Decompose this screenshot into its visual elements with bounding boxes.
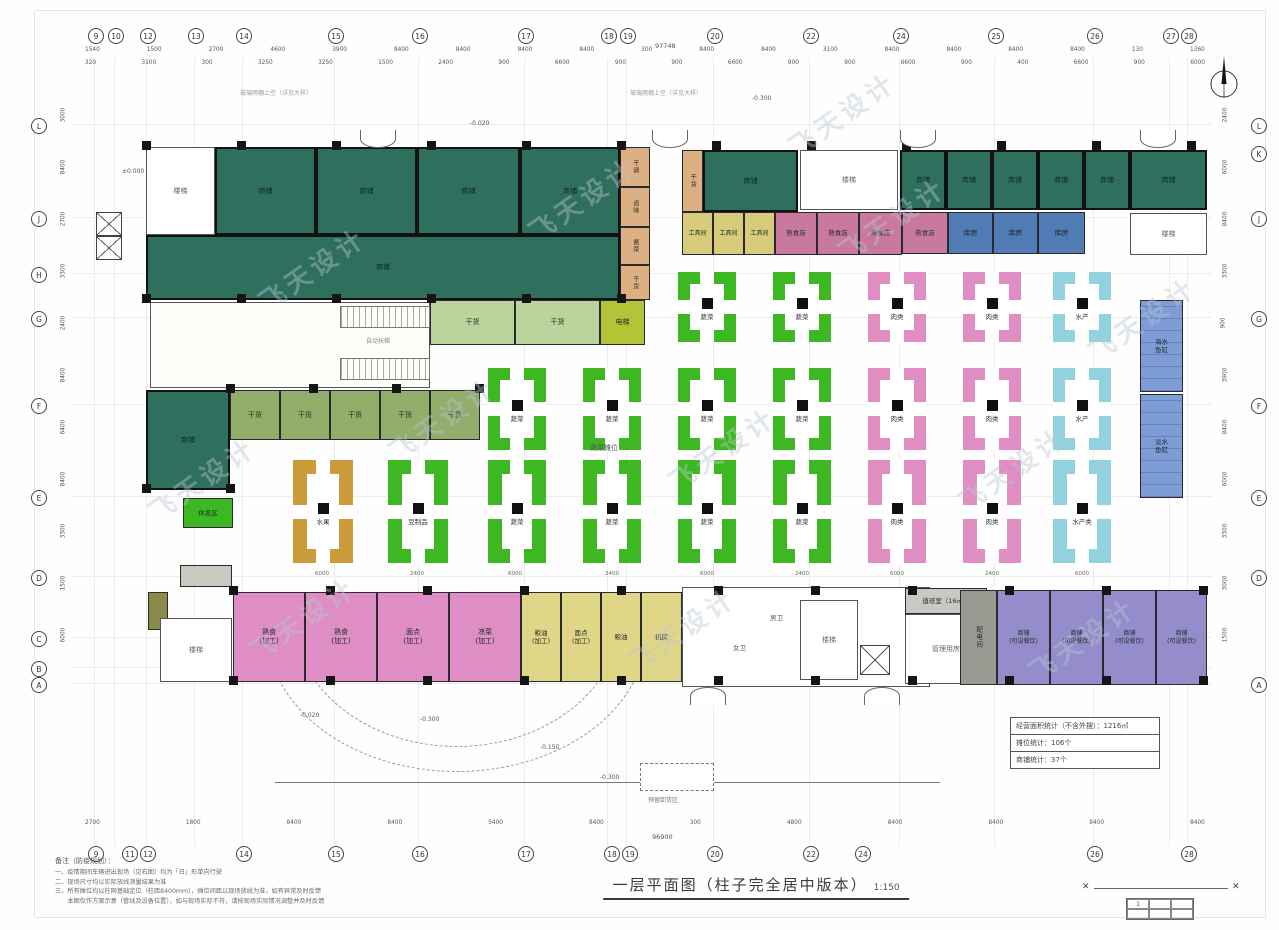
title-text: 一层平面图（柱子完全居中版本） xyxy=(613,876,868,894)
stall-aisle-gap xyxy=(1075,460,1089,474)
column-icon xyxy=(702,400,713,411)
column-icon xyxy=(326,676,335,685)
annotation-text: 女卫 xyxy=(733,642,746,652)
axis-bubble: J xyxy=(31,211,47,227)
axis-bubble: 24 xyxy=(893,28,909,44)
room-商铺: 商铺 (可设餐饮) xyxy=(1050,590,1103,685)
dimension-value: 2400 xyxy=(1222,108,1228,123)
dimension-value: 3250 xyxy=(318,60,333,66)
annotation-text: 预留卸货区 xyxy=(648,795,678,804)
dimension-value: 8400 xyxy=(589,820,604,826)
annotation-text: 2400 xyxy=(985,571,999,577)
annotation-text: 6000 xyxy=(1075,571,1089,577)
dimension-value: 400 xyxy=(1017,60,1028,66)
axis-bubble: 24 xyxy=(855,846,871,862)
axis-bubble: 26 xyxy=(1087,28,1103,44)
column-icon xyxy=(237,294,246,303)
room-干货: 干货 xyxy=(430,390,480,440)
stall-蔬菜: 蔬菜 xyxy=(678,272,736,342)
room-商铺: 商铺 xyxy=(1038,150,1084,210)
column-icon xyxy=(908,676,917,685)
room-熟食店: 熟食店 xyxy=(817,212,859,255)
dimension-value: 2700 xyxy=(209,47,224,53)
room-粮油: 粮油 xyxy=(601,592,641,682)
column-icon xyxy=(229,586,238,595)
axis-bubble: H xyxy=(31,267,47,283)
dimension-value: 8400 xyxy=(456,47,471,53)
title-block-cell: 1 xyxy=(1127,899,1149,909)
axis-bubble: L xyxy=(1251,118,1267,134)
room-干货: 干货 xyxy=(515,300,600,345)
axis-bubble: A xyxy=(1251,677,1267,693)
door-arc-icon xyxy=(690,687,726,705)
dimension-value: 8400 xyxy=(579,47,594,53)
axis-bubble: 18 xyxy=(601,28,617,44)
room-楼梯: 楼梯 xyxy=(800,600,858,680)
stall-aisle-gap xyxy=(700,368,714,380)
annotation-text: -0.150 xyxy=(540,744,559,751)
dimension-value: 3900 xyxy=(1222,368,1228,383)
column-icon xyxy=(423,676,432,685)
stall-aisle-gap xyxy=(700,272,714,284)
axis-bubble: 20 xyxy=(707,846,723,862)
room-凉菜: 凉菜 (加工) xyxy=(449,592,521,682)
dimension-value: 900 xyxy=(671,60,682,66)
dimension-value: 8400 xyxy=(1089,820,1104,826)
column-icon xyxy=(1005,676,1014,685)
dimension-value: 3000 xyxy=(60,108,66,123)
notes-heading: 备注（防疫规划）： xyxy=(55,856,415,866)
axis-bubble: 28 xyxy=(1181,846,1197,862)
stall-水果: 水果 xyxy=(293,460,353,563)
dimension-value: 130 xyxy=(1132,47,1143,53)
dimension-value: 6400 xyxy=(60,420,66,435)
stall-label: 肉类 xyxy=(868,516,926,526)
stall-aisle-gap xyxy=(510,438,524,450)
reserved-area xyxy=(640,763,714,791)
axis-bubble: 22 xyxy=(803,28,819,44)
dimension-value: 1500 xyxy=(147,47,162,53)
column-icon xyxy=(427,141,436,150)
room-熟食: 熟食 (加工) xyxy=(305,592,377,682)
room-库房: 库房 xyxy=(948,212,993,254)
column-icon xyxy=(617,141,626,150)
column-icon xyxy=(1077,400,1088,411)
stall-aisle-gap xyxy=(1075,272,1089,284)
stall-aisle-gap xyxy=(890,438,904,450)
x-mark-icon: ✕ xyxy=(1082,882,1090,892)
dimension-value: 900 xyxy=(788,60,799,66)
column-icon xyxy=(1077,503,1088,514)
room-干货: 干货 xyxy=(380,390,430,440)
column-icon xyxy=(811,676,820,685)
column-icon xyxy=(617,676,626,685)
dimension-value: 6000 xyxy=(60,628,66,643)
dimension-value: 8400 xyxy=(1070,47,1085,53)
stall-肉类: 肉类 xyxy=(868,460,926,563)
column-icon xyxy=(892,400,903,411)
annotation-text: 6000 xyxy=(508,571,522,577)
room-面点: 面点 (加工) xyxy=(377,592,449,682)
column-icon xyxy=(309,384,318,393)
room-机房: 机房 xyxy=(641,592,682,682)
annotation-text: -0.020 xyxy=(300,712,319,719)
room-淡水: 淡水 鱼缸 xyxy=(1140,394,1183,498)
door-arc-icon xyxy=(360,130,396,148)
dimension-value: 1500 xyxy=(378,60,393,66)
stall-aisle-gap xyxy=(700,460,714,474)
stall-aisle-gap xyxy=(985,272,999,284)
dimension-value: 8400 xyxy=(946,47,961,53)
column-icon xyxy=(811,586,820,595)
axis-bubble: J xyxy=(1251,211,1267,227)
annotation-text: 男卫 xyxy=(770,612,783,622)
stall-aisle-gap xyxy=(1075,549,1089,563)
column-icon xyxy=(427,294,436,303)
column-icon xyxy=(892,503,903,514)
stall-aisle-gap xyxy=(510,549,524,563)
dimension-value: 6000 xyxy=(1222,160,1228,175)
stall-豆制品: 豆制品 xyxy=(388,460,448,563)
axis-bubble: G xyxy=(31,311,47,327)
stall-aisle-gap xyxy=(795,368,809,380)
room-熟食: 熟食 (加工) xyxy=(233,592,305,682)
column-icon xyxy=(714,586,723,595)
stall-aisle-gap xyxy=(1075,438,1089,450)
axis-bubble: 25 xyxy=(988,28,1004,44)
stall-aisle-gap xyxy=(795,272,809,284)
stall-aisle-gap xyxy=(795,330,809,342)
stall-aisle-gap xyxy=(605,460,619,474)
column-icon xyxy=(237,141,246,150)
room-工具间: 工具间 xyxy=(713,212,744,255)
stall-aisle-gap xyxy=(890,330,904,342)
dimension-value: 8400 xyxy=(387,820,402,826)
stall-label: 蔬菜 xyxy=(773,516,831,526)
axis-bubble: 19 xyxy=(622,846,638,862)
room-商铺: 商铺 xyxy=(146,235,620,300)
stall-label: 肉类 xyxy=(963,516,1021,526)
column-icon xyxy=(712,141,721,150)
stall-label: 蔬菜 xyxy=(773,413,831,423)
room-商铺: 商铺 xyxy=(1084,150,1130,210)
stats-row: 摊位统计：106个 xyxy=(1010,734,1160,752)
dimension-value: 6600 xyxy=(555,60,570,66)
dimension-value: 8400 xyxy=(287,820,302,826)
dimension-value: 300 xyxy=(641,47,652,53)
dimension-value: 3300 xyxy=(60,264,66,279)
column-icon xyxy=(1077,298,1088,309)
room-商铺: 商铺 (可设餐饮) xyxy=(1156,590,1207,685)
axis-bubble: K xyxy=(1251,146,1267,162)
title-block-line xyxy=(1094,888,1228,889)
stall-label: 豆制品 xyxy=(388,516,448,526)
stall-水产: 水产 xyxy=(1053,368,1111,450)
column-icon xyxy=(1199,586,1208,595)
dimension-value: 1360 xyxy=(1190,47,1205,53)
stall-label: 水产 xyxy=(1053,311,1111,321)
dimension-value: 4800 xyxy=(787,820,802,826)
room-面点: 面点 (加工) xyxy=(561,592,601,682)
axis-bubble: L xyxy=(31,118,47,134)
column-icon xyxy=(987,298,998,309)
annotation-text: 2400 xyxy=(605,571,619,577)
axis-bubble: 10 xyxy=(108,28,124,44)
note-item: 本图仅作方案示意（管线及设备位置），如与现场实际不符，请按现场实际情况调整并及时… xyxy=(55,897,415,907)
room-库房: 库房 xyxy=(1038,212,1085,254)
dimension-value: 3300 xyxy=(60,524,66,539)
column-icon xyxy=(1102,676,1111,685)
notes-block: 备注（防疫规划）： 一、疫情期间车辆进出现场（见右图）均为「日」形单向行驶二、现… xyxy=(55,856,415,906)
stall-aisle-gap xyxy=(411,549,425,563)
room-商铺: 商铺 xyxy=(1130,150,1207,210)
room-粮油: 粮油 (加工) xyxy=(521,592,561,682)
stall-aisle-gap xyxy=(1075,330,1089,342)
dimension-value: 1800 xyxy=(186,820,201,826)
title-scale: 1:150 xyxy=(874,883,900,893)
dimension-value: 3250 xyxy=(258,60,273,66)
stall-label: 蔬菜 xyxy=(488,516,546,526)
stall-aisle-gap xyxy=(795,438,809,450)
dimension-value: 8400 xyxy=(1190,820,1205,826)
dimension-value: 2400 xyxy=(60,316,66,331)
dimension-value: 3100 xyxy=(823,47,838,53)
dimension-value: 6600 xyxy=(1074,60,1089,66)
stall-肉类: 肉类 xyxy=(868,272,926,342)
column-icon xyxy=(522,294,531,303)
column-icon xyxy=(520,586,529,595)
dimension-value: 1500 xyxy=(60,576,66,591)
room-干货: 干货 xyxy=(682,150,703,212)
stall-蔬菜: 蔬菜 xyxy=(488,368,546,450)
grid-line xyxy=(114,58,115,846)
stall-aisle-gap xyxy=(890,368,904,380)
dimension-value: 8400 xyxy=(1222,420,1228,435)
title-block-table: 1 xyxy=(1126,898,1194,920)
annotation-text: -0.300 xyxy=(420,716,439,723)
column-icon xyxy=(797,400,808,411)
title-block-cell xyxy=(1149,909,1171,919)
stall-aisle-gap xyxy=(985,438,999,450)
dimension-value: 8400 xyxy=(888,820,903,826)
floor-plan-canvas: 一层平面图（柱子完全居中版本）1:150 备注（防疫规划）： 一、疫情期间车辆进… xyxy=(0,0,1279,930)
dimension-value: 8400 xyxy=(699,47,714,53)
stall-蔬菜: 蔬菜 xyxy=(678,368,736,450)
room-商铺: 商铺 xyxy=(992,150,1038,210)
column-icon xyxy=(987,400,998,411)
dimension-value: 8400 xyxy=(518,47,533,53)
escalator-icon xyxy=(340,358,430,380)
dimension-value: 8400 xyxy=(60,160,66,175)
dimension-value: 900 xyxy=(961,60,972,66)
column-icon xyxy=(797,298,808,309)
elevator-icon xyxy=(96,236,122,260)
annotation-text: 自动扶梯 xyxy=(366,336,390,345)
room-工具间: 工具间 xyxy=(682,212,713,255)
annotation-text: -0.020 xyxy=(470,120,489,127)
annotation-text: 6000 xyxy=(315,571,329,577)
room-休息区: 休息区 xyxy=(183,498,233,528)
stall-aisle-gap xyxy=(605,368,619,380)
column-icon xyxy=(332,294,341,303)
stall-aisle-gap xyxy=(605,549,619,563)
dimension-row: 2700180084008400540084003004800840084008… xyxy=(85,820,1205,826)
column-icon xyxy=(413,503,424,514)
stall-label: 肉类 xyxy=(963,413,1021,423)
column-icon xyxy=(318,503,329,514)
dimension-value: 8400 xyxy=(1222,212,1228,227)
dimension-value: 1500 xyxy=(1222,628,1228,643)
axis-bubble: 22 xyxy=(803,846,819,862)
dimension-value: 3000 xyxy=(1222,576,1228,591)
stall-aisle-gap xyxy=(411,460,425,474)
dimension-value: 300 xyxy=(202,60,213,66)
room-商铺: 商铺 xyxy=(146,390,230,490)
axis-bubble: 9 xyxy=(88,28,104,44)
column-icon xyxy=(423,586,432,595)
axis-bubble: 16 xyxy=(412,28,428,44)
axis-bubble: A xyxy=(31,677,47,693)
title-block-cell xyxy=(1171,899,1193,909)
room-商铺: 商铺 xyxy=(215,147,316,235)
stall-aisle-gap xyxy=(700,330,714,342)
dimension-value: 900 xyxy=(1221,317,1227,328)
dimension-value: 8400 xyxy=(60,368,66,383)
door-arc-icon xyxy=(900,130,936,148)
dimension-value: 2400 xyxy=(438,60,453,66)
annotation-text: 玻璃雨棚上空（详见大样） xyxy=(630,88,702,97)
axis-bubble: G xyxy=(1251,311,1267,327)
dimension-value: 3900 xyxy=(332,47,347,53)
dimension-value: 900 xyxy=(615,60,626,66)
column-icon xyxy=(332,141,341,150)
annotation-text: 玻璃雨棚上空（详见大样） xyxy=(240,88,312,97)
column-icon xyxy=(392,384,401,393)
axis-bubble: D xyxy=(1251,570,1267,586)
annotation-text: 96900 xyxy=(652,833,673,841)
dimension-value: 8400 xyxy=(60,472,66,487)
column-icon xyxy=(326,586,335,595)
column-icon xyxy=(892,298,903,309)
column-icon xyxy=(512,503,523,514)
column-icon xyxy=(702,503,713,514)
stall-肉类: 肉类 xyxy=(963,272,1021,342)
dimension-value: 1540 xyxy=(85,47,100,53)
axis-bubble: 13 xyxy=(188,28,204,44)
stall-蔬菜: 蔬菜 xyxy=(773,460,831,563)
room-商铺: 商铺 (可设餐饮) xyxy=(997,590,1050,685)
column-icon xyxy=(520,676,529,685)
stall-蔬菜: 蔬菜 xyxy=(583,368,641,450)
room-greyl xyxy=(180,565,232,587)
stall-label: 肉类 xyxy=(868,311,926,321)
axis-bubble: F xyxy=(1251,398,1267,414)
axis-bubble: 15 xyxy=(328,28,344,44)
annotation-text: 6000 xyxy=(700,571,714,577)
room-干货: 干货 xyxy=(280,390,330,440)
room-商铺: 商铺 xyxy=(900,150,946,210)
dimension-value: 6000 xyxy=(1190,60,1205,66)
title-block-cell xyxy=(1149,899,1171,909)
room-卤味: 卤味 xyxy=(620,187,650,227)
stall-aisle-gap xyxy=(890,549,904,563)
dimension-value: 4600 xyxy=(270,47,285,53)
dimension-value: 300 xyxy=(690,820,701,826)
axis-bubble: 14 xyxy=(236,28,252,44)
column-icon xyxy=(1187,141,1196,150)
room-干货: 干货 xyxy=(230,390,280,440)
column-icon xyxy=(797,503,808,514)
annotation-text: 蔬菜摊位 xyxy=(590,443,618,453)
room-楼梯: 楼梯 xyxy=(160,618,232,682)
room-楼梯: 楼梯 xyxy=(146,147,215,235)
stall-aisle-gap xyxy=(795,460,809,474)
stall-蔬菜: 蔬菜 xyxy=(488,460,546,563)
dimension-value: 5400 xyxy=(488,820,503,826)
door-arc-icon xyxy=(652,130,688,148)
stall-aisle-gap xyxy=(985,460,999,474)
column-icon xyxy=(617,294,626,303)
room-商铺: 商铺 xyxy=(703,150,798,212)
axis-bubble: 26 xyxy=(1087,846,1103,862)
stall-label: 蔬菜 xyxy=(583,516,641,526)
title-block-cell xyxy=(1127,909,1149,919)
column-icon xyxy=(997,141,1006,150)
room-库房: 库房 xyxy=(993,212,1038,254)
stall-蔬菜: 蔬菜 xyxy=(583,460,641,563)
room-海水: 海水 鱼缸 xyxy=(1140,300,1183,392)
stall-label: 肉类 xyxy=(868,413,926,423)
stall-肉类: 肉类 xyxy=(963,368,1021,450)
stall-label: 蔬菜 xyxy=(488,413,546,423)
axis-bubble: 17 xyxy=(518,846,534,862)
annotation-text: ±0.000 xyxy=(122,168,144,175)
title-block-cell xyxy=(1171,909,1193,919)
stall-aisle-gap xyxy=(890,272,904,284)
site-line xyxy=(275,782,940,783)
dimension-value: 2700 xyxy=(85,820,100,826)
dimension-value: 8400 xyxy=(885,47,900,53)
room-干货: 干货 xyxy=(430,300,515,345)
elevator-icon xyxy=(860,645,890,675)
room-商铺: 商铺 (可设餐饮) xyxy=(1103,590,1156,685)
room-干货: 干货 xyxy=(330,390,380,440)
room-酱菜: 酱菜 xyxy=(620,227,650,265)
door-arc-icon xyxy=(864,687,900,705)
stall-水产: 水产 xyxy=(1053,272,1111,342)
dimension-value: 6600 xyxy=(901,60,916,66)
room-商铺: 商铺 xyxy=(417,147,520,235)
stall-aisle-gap xyxy=(700,438,714,450)
stall-aisle-gap xyxy=(510,368,524,380)
stall-蔬菜: 蔬菜 xyxy=(773,272,831,342)
dimension-value: 3300 xyxy=(1222,524,1228,539)
column-icon xyxy=(522,141,531,150)
dimension-value: 3100 xyxy=(141,60,156,66)
column-icon xyxy=(512,400,523,411)
stall-肉类: 肉类 xyxy=(963,460,1021,563)
column-icon xyxy=(607,400,618,411)
axis-bubble: C xyxy=(31,631,47,647)
grid-line xyxy=(72,124,1212,125)
annotation-text: 6000 xyxy=(890,571,904,577)
annotation-text: -0.300 xyxy=(600,774,619,781)
stall-label: 蔬菜 xyxy=(773,311,831,321)
column-icon xyxy=(1102,586,1111,595)
stall-aisle-gap xyxy=(795,549,809,563)
column-icon xyxy=(1092,141,1101,150)
axis-bubble: E xyxy=(1251,490,1267,506)
